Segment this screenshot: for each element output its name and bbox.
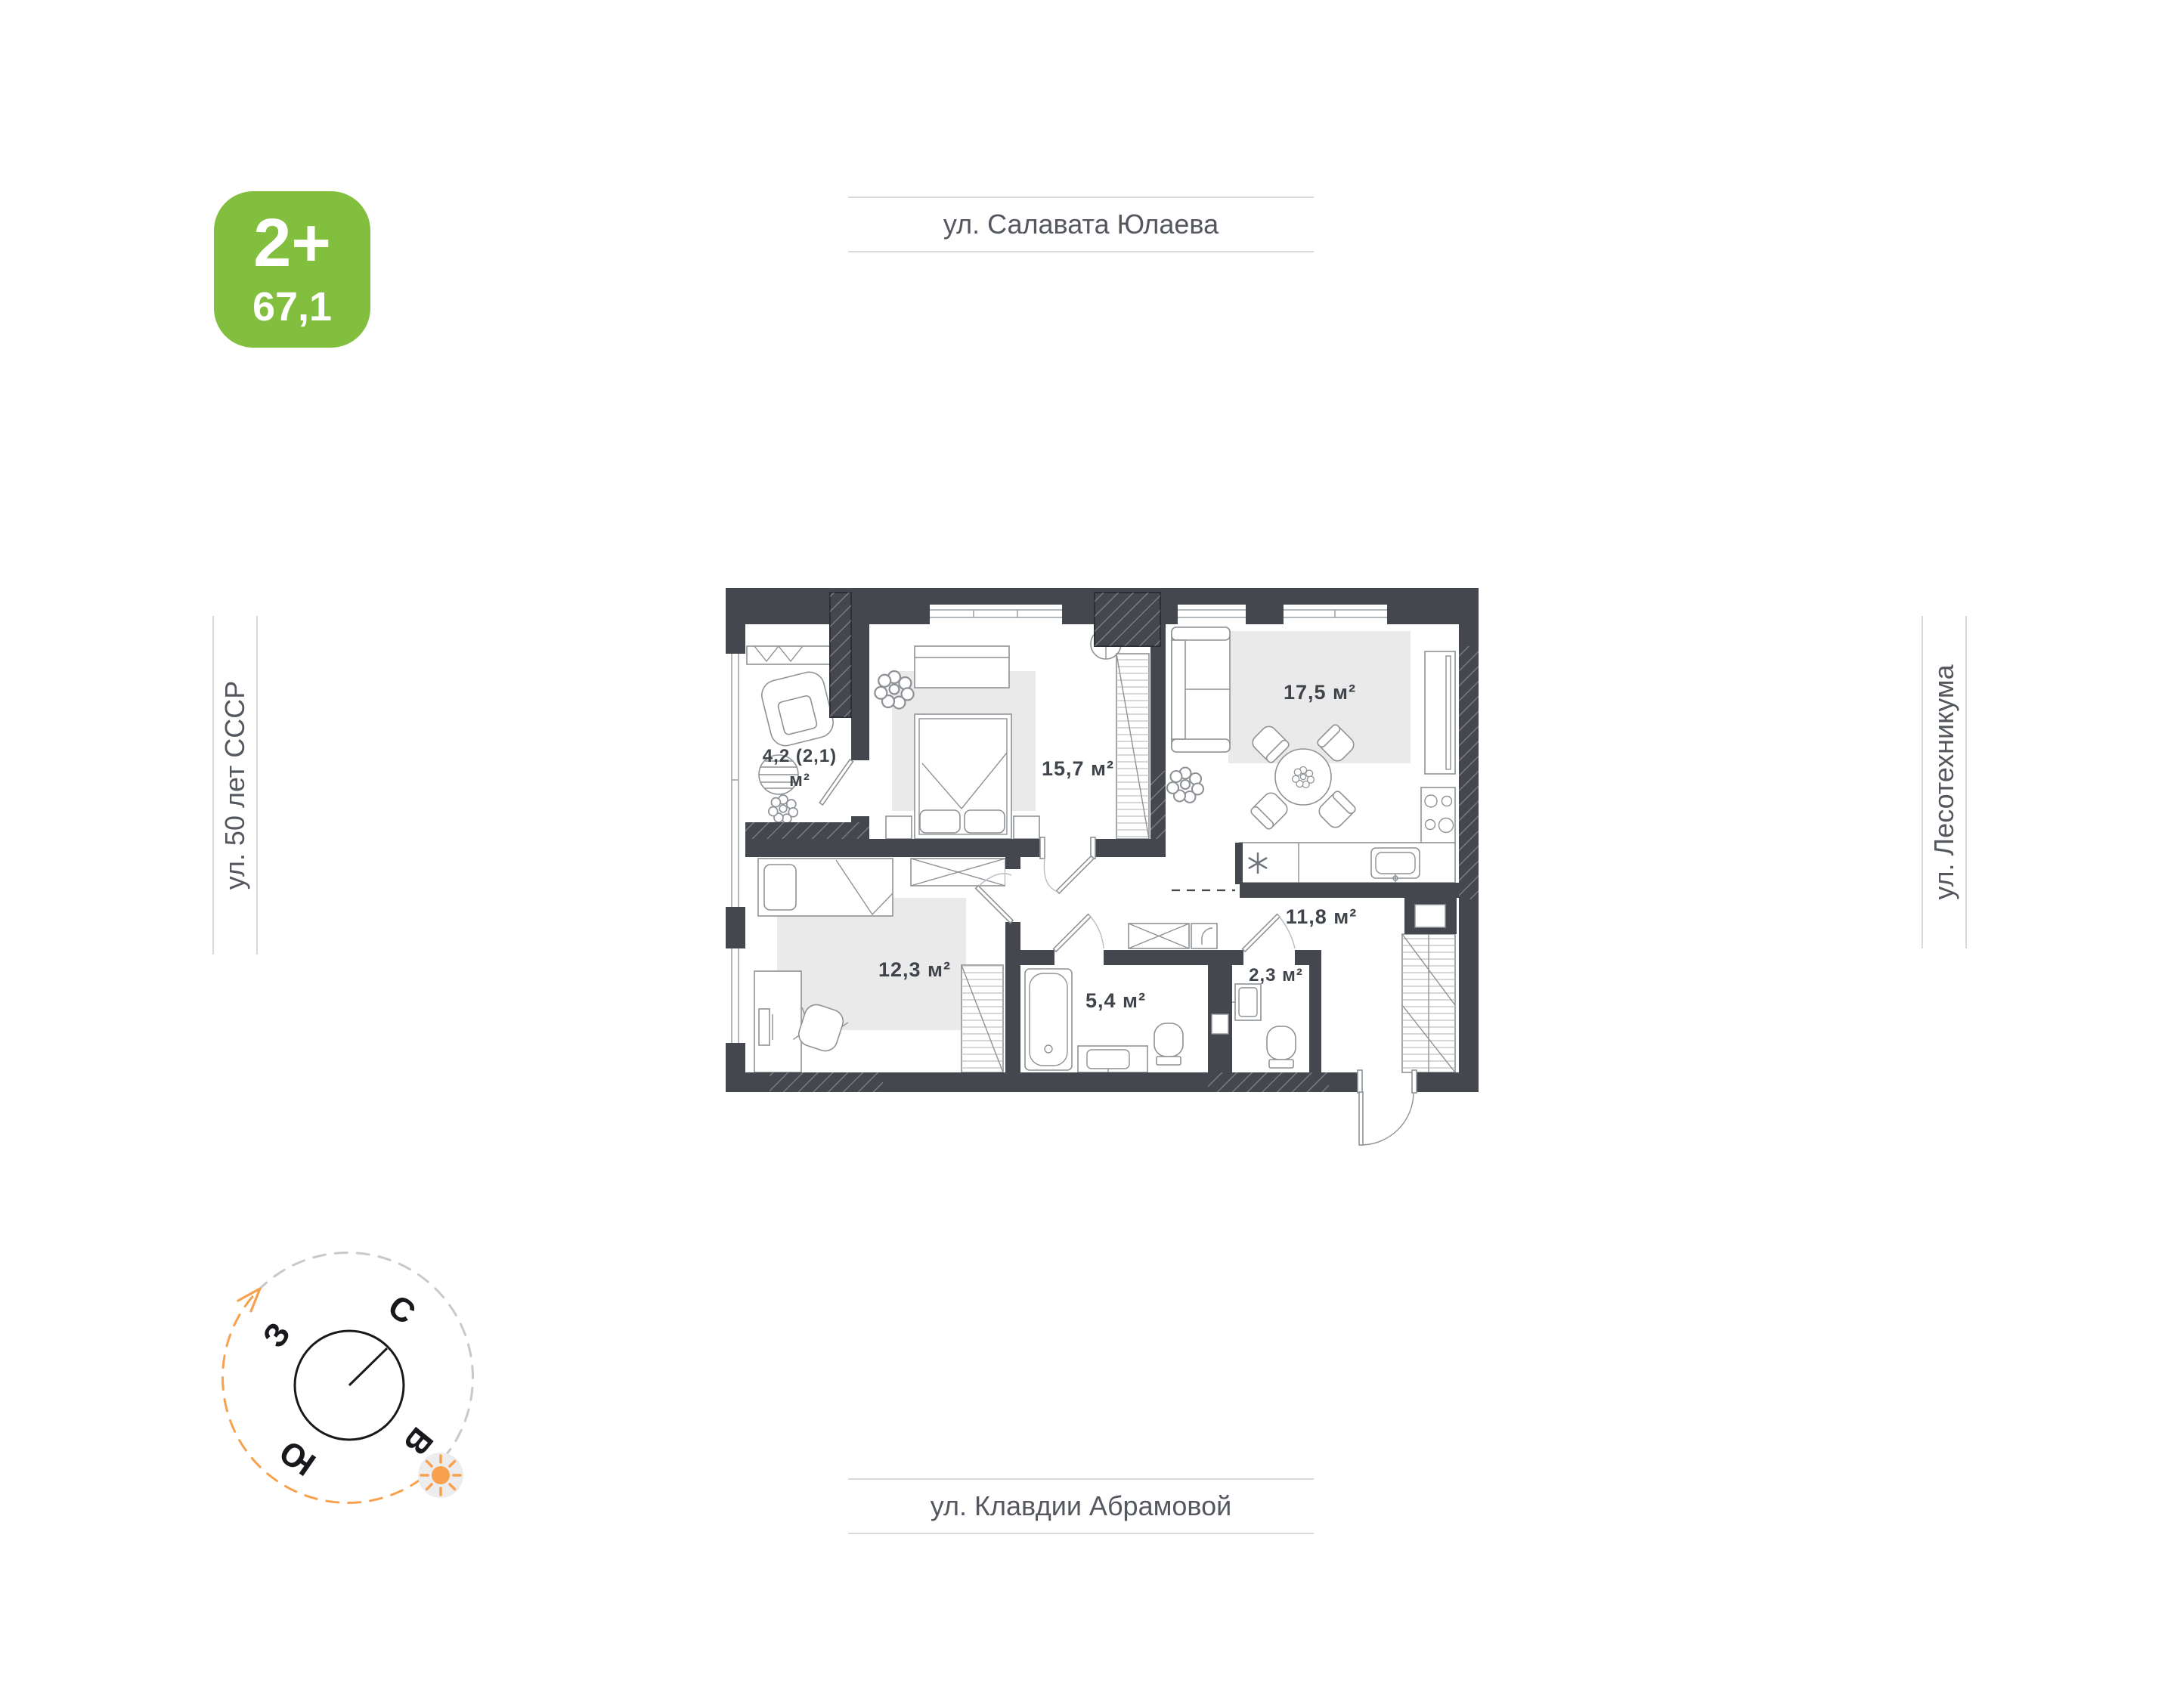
toilet-icon xyxy=(1267,1026,1296,1068)
street-name: ул. Лесотехникума xyxy=(1928,664,1960,899)
cabinet-icon xyxy=(1129,924,1189,948)
plant-icon xyxy=(769,795,797,823)
badge-room-count: 2+ xyxy=(253,209,331,277)
dresser-icon xyxy=(915,646,1009,688)
wardrobe-icon xyxy=(1116,654,1149,839)
toilet-icon xyxy=(1154,1023,1183,1065)
desk-icon xyxy=(754,971,801,1072)
bedroom-second-area-label: 12,3 м² xyxy=(878,958,951,981)
balcony-door xyxy=(819,760,869,816)
plant-icon xyxy=(1167,768,1203,803)
floor-plan-drawing: 4,2 (2,1) м² 15,7 м² 17,5 м² 12,3 м² 11,… xyxy=(724,582,1480,1156)
hallway-area-label: 11,8 м² xyxy=(1286,905,1358,928)
street-name: ул. Клавдии Абрамовой xyxy=(931,1490,1231,1522)
street-label-left: ул. 50 лет СССР xyxy=(212,616,258,955)
floor-plan-page: 2+ 67,1 ул. Салавата Юлаева ул. Клавдии … xyxy=(0,0,2177,1708)
compass-rose: С З Ю В xyxy=(200,1230,495,1525)
corner-sink-icon xyxy=(1191,924,1217,948)
nightstand-icon xyxy=(886,816,912,839)
wc-sink-icon xyxy=(1229,984,1261,1020)
street-label-right: ул. Лесотехникума xyxy=(1922,616,1967,948)
entrance-door xyxy=(1358,1070,1417,1145)
compass-north-letter: С xyxy=(381,1288,422,1332)
kitchen-sink-icon xyxy=(1371,848,1420,883)
window xyxy=(1284,605,1387,624)
badge-total-area: 67,1 xyxy=(252,286,332,327)
hatched-pier xyxy=(1095,593,1160,646)
armchair-icon xyxy=(759,669,837,749)
nightstand-icon xyxy=(1014,816,1039,839)
duct-block xyxy=(1404,898,1457,934)
fridge-icon xyxy=(1425,651,1455,774)
window xyxy=(726,654,745,907)
bathroom-door xyxy=(1054,914,1104,951)
street-label-top: ул. Салавата Юлаева xyxy=(848,196,1314,252)
loggia-unit-label: м² xyxy=(789,770,810,791)
cabinet-icon xyxy=(911,859,1005,886)
compass-south-letter: Ю xyxy=(273,1433,322,1483)
double-bed-icon xyxy=(915,714,1011,839)
sofa-icon xyxy=(1172,627,1230,752)
bathtub-icon xyxy=(1025,969,1072,1070)
wc-area-label: 2,3 м² xyxy=(1249,965,1303,986)
window xyxy=(1178,605,1246,624)
apartment-badge: 2+ 67,1 xyxy=(214,191,370,348)
street-label-bottom: ул. Клавдии Абрамовой xyxy=(848,1478,1314,1534)
kitchen-counter xyxy=(1240,843,1455,883)
loggia-area-label: 4,2 (2,1) xyxy=(763,746,837,766)
bedroom-main-furniture xyxy=(875,629,1149,839)
street-name: ул. Салавата Юлаева xyxy=(943,209,1219,240)
street-name: ул. 50 лет СССР xyxy=(219,681,251,890)
compass-west-letter: З xyxy=(255,1316,298,1354)
wardrobe-icon xyxy=(962,965,1003,1072)
window xyxy=(930,605,1062,624)
bedroom-main-door xyxy=(1040,837,1095,893)
stove-icon xyxy=(1421,787,1455,843)
bathroom-sink-icon xyxy=(1078,1046,1147,1076)
bedroom-main-area-label: 15,7 м² xyxy=(1042,757,1114,780)
bathroom-area-label: 5,4 м² xyxy=(1085,989,1146,1012)
hall-wardrobe-icon xyxy=(1402,934,1455,1072)
hatched-pier xyxy=(830,593,851,717)
kitchen-living-area-label: 17,5 м² xyxy=(1284,681,1356,704)
window xyxy=(726,948,745,1043)
single-bed-icon xyxy=(758,859,893,916)
